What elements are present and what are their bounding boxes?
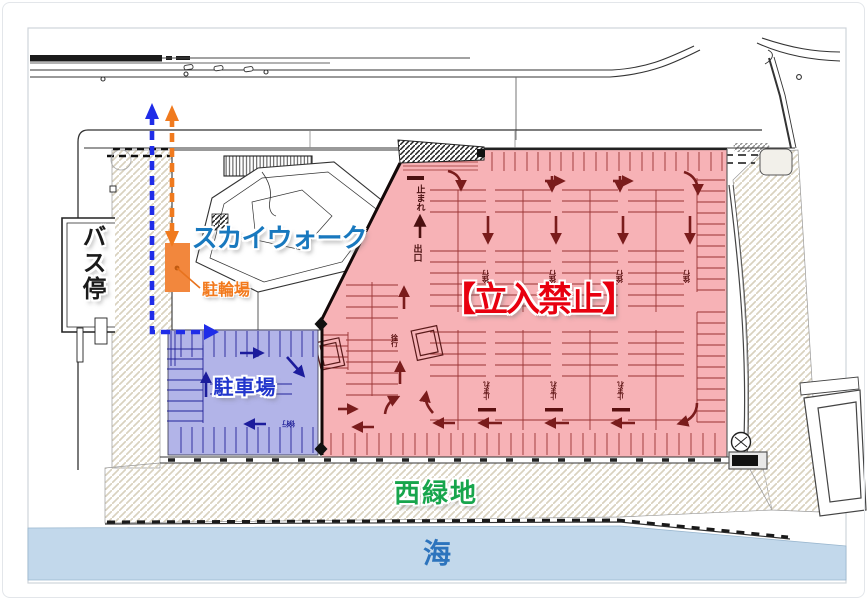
bus-stop-label: バス停 [79,224,103,302]
site-plan-map: バス停 スカイウォーク 駐輪場 駐車場 【立入禁止】 西緑地 海 止まれ 出口 … [0,0,867,600]
stop-marking: 止まれ [551,382,558,400]
stop-marking: 止まれ [484,382,491,400]
slow-marking: 徐行 [550,271,557,283]
slow-marking: 徐行 [483,271,490,283]
exit-stop-marking: 止まれ [416,185,425,212]
slow-marking: 徐行 [391,334,398,346]
exit-marking: 出口 [413,244,422,262]
slow-marking: 徐行 [283,420,295,427]
parking-zone-label: 駐車場 [214,378,277,398]
slow-marking: 徐行 [617,271,624,283]
sea-label: 海 [423,540,451,568]
bicycle-parking-label: 駐輪場 [202,283,250,299]
slow-marking: 徐行 [684,271,691,283]
site-plan-drawing [0,0,867,600]
skywalk-label: スカイウォーク [191,225,366,251]
no-entry-label: 【立入禁止】 [442,283,634,317]
west-green-space-label: 西緑地 [394,480,478,506]
hatch-end-marker [477,149,485,157]
sign-board [732,455,758,466]
stop-marking: 止まれ [618,382,625,400]
